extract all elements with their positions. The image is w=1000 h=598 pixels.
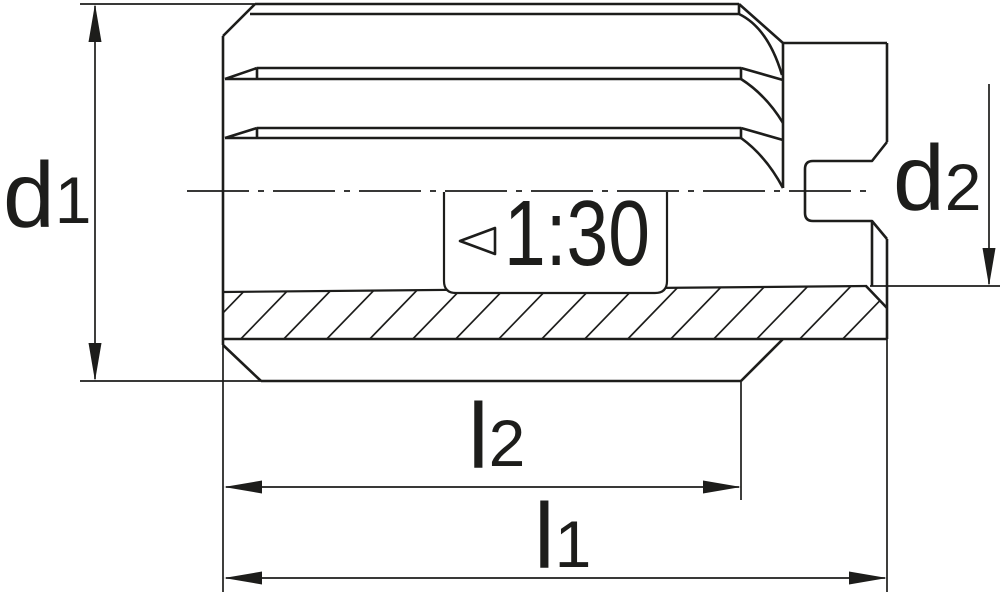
label-d1: d1 xyxy=(3,143,91,247)
label-taper-ratio: 1:30 xyxy=(504,181,650,285)
label-l1: l1 xyxy=(534,484,591,588)
technical-drawing-page: 1:30 xyxy=(0,0,1000,598)
shell-reamer-section-drawing: 1:30 xyxy=(0,0,1000,598)
taper-callout: 1:30 xyxy=(444,181,667,293)
label-l2: l2 xyxy=(468,384,525,488)
label-d2: d2 xyxy=(893,126,981,230)
